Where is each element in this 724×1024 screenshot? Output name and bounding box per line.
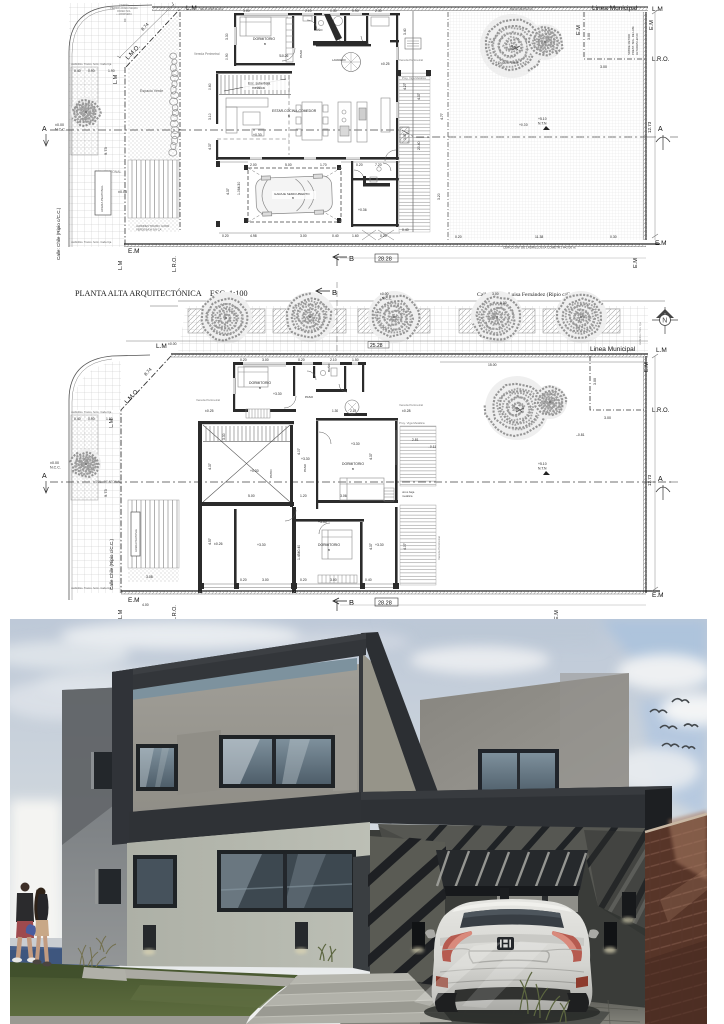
svg-text:Vereda Perimetral: Vereda Perimetral — [194, 52, 220, 56]
svg-text:3.00: 3.00 — [492, 292, 499, 296]
svg-text:3.40: 3.40 — [403, 28, 407, 35]
svg-text:9.73: 9.73 — [103, 146, 108, 155]
svg-text:+ JARDINERA: + JARDINERA — [116, 13, 132, 16]
svg-text:4.57: 4.57 — [208, 538, 212, 545]
svg-text:5.00: 5.00 — [285, 163, 292, 167]
svg-text:3.30: 3.30 — [225, 33, 229, 40]
svg-text:L.M: L.M — [113, 74, 119, 84]
svg-text:Jardinillos. Transv. horm. Cad: Jardinillos. Transv. horm. Cada Cja. — [71, 410, 112, 414]
svg-text:Vereda Perimetral: Vereda Perimetral — [399, 58, 423, 62]
svg-text:E.M: E.M — [644, 362, 650, 372]
svg-text:4.37: 4.37 — [226, 188, 230, 195]
svg-text:L.M: L.M — [186, 5, 197, 12]
svg-text:+3.30: +3.30 — [375, 543, 384, 547]
svg-text:20.40: 20.40 — [417, 141, 421, 150]
svg-text:PASO: PASO — [299, 49, 303, 58]
svg-text:0.20: 0.20 — [300, 578, 307, 582]
svg-text:+3.30: +3.30 — [273, 392, 282, 396]
svg-text:B: B — [259, 386, 261, 390]
svg-text:3.08: 3.08 — [146, 575, 153, 579]
svg-text:2.30: 2.30 — [375, 9, 382, 13]
svg-text:2.10: 2.10 — [305, 9, 312, 13]
svg-text:E.M: E.M — [576, 25, 582, 35]
svg-text:1.50: 1.50 — [352, 358, 359, 362]
svg-text:E.M: E.M — [128, 248, 140, 255]
svg-text:8.74: 8.74 — [143, 367, 153, 377]
svg-text:+0.36: +0.36 — [358, 208, 367, 212]
svg-text:1.30: 1.30 — [332, 409, 338, 413]
svg-text:0.90: 0.90 — [352, 9, 359, 13]
svg-text:N.T.N: N.T.N — [538, 122, 547, 126]
svg-text:Linea Municipal: Linea Municipal — [592, 5, 638, 12]
svg-text:0.90: 0.90 — [88, 417, 95, 421]
svg-text:4.77: 4.77 — [440, 113, 444, 120]
svg-text:DORMITORIO: DORMITORIO — [253, 37, 275, 41]
svg-text:DORMITORIO: DORMITORIO — [249, 381, 271, 385]
svg-text:Proy. Viga Metálica: Proy. Viga Metálica — [399, 421, 425, 425]
svg-text:3.00: 3.00 — [600, 65, 607, 69]
svg-text:PATIO: PATIO — [269, 469, 273, 478]
svg-text:L.M.O.: L.M.O. — [124, 388, 141, 406]
svg-text:L.M: L.M — [656, 347, 667, 354]
svg-text:3.20: 3.20 — [437, 193, 441, 200]
svg-text:⇅0.26: ⇅0.26 — [279, 54, 289, 58]
svg-text:Proy. Viga Metálica: Proy. Viga Metálica — [402, 76, 426, 80]
svg-text:28.28: 28.28 — [378, 257, 392, 263]
svg-text:4.07: 4.07 — [297, 448, 301, 455]
svg-text:3.00: 3.00 — [587, 33, 591, 40]
svg-text:B: B — [349, 598, 354, 607]
svg-text:Espacio Verde: Espacio Verde — [140, 89, 163, 93]
svg-text:0.20: 0.20 — [240, 578, 247, 582]
svg-text:+5.10: +5.10 — [538, 462, 547, 466]
svg-text:4.37: 4.37 — [208, 463, 212, 470]
svg-text:3.47: 3.47 — [403, 133, 407, 140]
svg-text:2.10: 2.10 — [330, 358, 337, 362]
svg-text:LAVADERO: LAVADERO — [332, 58, 346, 62]
svg-text:15.00: 15.00 — [488, 363, 497, 367]
svg-text:+0.30: +0.30 — [253, 133, 262, 137]
svg-text:4.98: 4.98 — [250, 234, 257, 238]
svg-text:1.60: 1.60 — [352, 234, 359, 238]
svg-text:L.R.O.: L.R.O. — [172, 256, 178, 272]
svg-text:1.20: 1.20 — [300, 494, 307, 498]
svg-text:BAÑO: BAÑO — [314, 27, 323, 32]
svg-text:N.C.C.: N.C.C. — [50, 466, 61, 470]
svg-text:±0.08: ±0.08 — [118, 190, 127, 194]
svg-text:Jardinillos. Transv. horm. Cad: Jardinillos. Transv. horm. Cada Cja. — [71, 62, 112, 66]
svg-text:0.40: 0.40 — [74, 69, 81, 73]
svg-text:0.20: 0.20 — [240, 358, 247, 362]
svg-text:3.00: 3.00 — [262, 358, 269, 362]
svg-text:5.00: 5.00 — [248, 494, 255, 498]
svg-text:B: B — [349, 254, 354, 263]
svg-text:Jardinillos. Transv. horm. Cad: Jardinillos. Transv. horm. Cada Cja. — [71, 586, 112, 590]
svg-text:+3.30: +3.30 — [318, 520, 327, 524]
svg-text:DORMITORIO: DORMITORIO — [318, 543, 340, 547]
svg-text:A: A — [658, 476, 663, 483]
svg-text:3.00: 3.00 — [262, 578, 269, 582]
svg-text:L.R.O.: L.R.O. — [652, 57, 670, 63]
svg-text:–0.81: –0.81 — [576, 433, 585, 437]
svg-text:E.M: E.M — [128, 597, 140, 604]
svg-text:11.38: 11.38 — [535, 235, 543, 239]
svg-text:1.30: 1.30 — [330, 9, 337, 13]
svg-text:L.M: L.M — [118, 609, 124, 619]
svg-text:Esc. sube/baja: Esc. sube/baja — [248, 82, 270, 86]
svg-text:2.00: 2.00 — [250, 163, 257, 167]
svg-text:3.06: 3.06 — [340, 494, 347, 498]
svg-text:1.00: 1.00 — [500, 301, 507, 305]
svg-text:3.00: 3.00 — [604, 416, 611, 420]
svg-text:L.M: L.M — [156, 343, 167, 350]
svg-text:4.07: 4.07 — [403, 543, 407, 550]
svg-text:DORMITORIO: DORMITORIO — [342, 462, 364, 466]
svg-text:±0.00: ±0.00 — [168, 342, 177, 346]
svg-text:Jardinillos Tran. Cja: Jardinillos Tran. Cja — [638, 322, 642, 345]
svg-text:L.R.O.: L.R.O. — [652, 408, 670, 414]
svg-text:±0.25: ±0.25 — [205, 409, 214, 413]
svg-text:JARDINES TRANSV. HORM.: JARDINES TRANSV. HORM. — [136, 224, 170, 228]
svg-text:0.40: 0.40 — [365, 578, 372, 582]
svg-text:L.M: L.M — [118, 260, 124, 270]
svg-text:N: N — [662, 318, 667, 325]
svg-text:metálica: metálica — [402, 494, 413, 498]
svg-text:+0.30: +0.30 — [250, 469, 259, 473]
svg-text:+5.10: +5.10 — [538, 117, 547, 121]
svg-text:Calle: Chile (Ripio c/C.C.): Calle: Chile (Ripio c/C.C.) — [56, 207, 61, 260]
svg-text:Vereda Perimetral: Vereda Perimetral — [437, 536, 441, 560]
svg-text:7.20: 7.20 — [375, 163, 382, 167]
svg-text:4.37: 4.37 — [369, 543, 373, 550]
svg-text:0.20: 0.20 — [222, 234, 229, 238]
svg-text:±0.00: ±0.00 — [50, 461, 59, 465]
svg-text:+3.30: +3.30 — [257, 543, 266, 547]
svg-text:PASO: PASO — [305, 395, 314, 399]
svg-text:2.10: 2.10 — [350, 409, 356, 413]
svg-text:L.M: L.M — [652, 6, 663, 13]
svg-text:3.10: 3.10 — [208, 113, 212, 120]
svg-text:E.M: E.M — [652, 592, 664, 599]
svg-text:Espacio Verde: Espacio Verde — [498, 61, 519, 65]
svg-text:E.M: E.M — [554, 610, 560, 620]
svg-text:REJA METALICA: REJA METALICA — [200, 7, 223, 11]
svg-text:A: A — [42, 126, 47, 133]
svg-text:BAÑO: BAÑO — [326, 363, 331, 372]
svg-text:E.M: E.M — [633, 258, 639, 268]
svg-text:ACERA PEATONAL: ACERA PEATONAL — [100, 185, 104, 212]
svg-text:1.70: 1.70 — [320, 163, 327, 167]
svg-text:4.27: 4.27 — [403, 83, 407, 90]
svg-text:3.00: 3.00 — [593, 378, 597, 385]
svg-text:4.37: 4.37 — [417, 93, 421, 100]
svg-text:metálica: metálica — [252, 86, 265, 90]
svg-text:1.064.30: 1.064.30 — [237, 182, 241, 195]
svg-text:0.40: 0.40 — [402, 228, 409, 232]
svg-text:4.37: 4.37 — [208, 143, 212, 150]
svg-text:28.28: 28.28 — [378, 601, 392, 607]
svg-text:N.C.C.: N.C.C. — [382, 297, 392, 301]
svg-text:3.00: 3.00 — [243, 9, 250, 13]
svg-text:±0.25: ±0.25 — [381, 62, 390, 66]
svg-text:9.73: 9.73 — [103, 488, 108, 497]
svg-text:±0.00: ±0.00 — [380, 292, 389, 296]
svg-text:B: B — [352, 467, 354, 471]
svg-text:1.4540.40: 1.4540.40 — [297, 545, 301, 560]
svg-text:0.60: 0.60 — [208, 83, 212, 90]
svg-text:ACERA PEATONAL: ACERA PEATONAL — [134, 528, 138, 552]
svg-text:Linea Municipal: Linea Municipal — [590, 346, 636, 353]
svg-text:3.00: 3.00 — [330, 578, 337, 582]
svg-text:4.37: 4.37 — [369, 453, 373, 460]
svg-text:N.T.N: N.T.N — [538, 467, 547, 471]
svg-text:±0.28: ±0.28 — [402, 409, 411, 413]
svg-text:0.20: 0.20 — [380, 234, 387, 238]
svg-text:Vereda Perimetral: Vereda Perimetral — [196, 398, 220, 402]
svg-text:B: B — [292, 196, 294, 200]
svg-text:VERDE BAJA S/N CA: VERDE BAJA S/N CA — [136, 228, 162, 232]
svg-text:ALTURAS H/2.00: ALTURAS H/2.00 — [635, 33, 639, 55]
svg-text:0.20: 0.20 — [356, 163, 363, 167]
svg-text:B: B — [264, 42, 266, 46]
svg-text:0.20: 0.20 — [298, 358, 305, 362]
svg-text:Vereda Perimetral: Vereda Perimetral — [399, 403, 423, 407]
svg-text:12.73: 12.73 — [647, 121, 652, 133]
svg-text:0.20: 0.20 — [455, 235, 462, 239]
svg-text:REJA METALICA: REJA METALICA — [510, 7, 533, 11]
svg-text:4.00: 4.00 — [142, 603, 149, 607]
svg-text:ESTAR-COCINA-COMEDOR: ESTAR-COCINA-COMEDOR — [272, 109, 317, 113]
svg-text:+3.30: +3.30 — [351, 442, 360, 446]
svg-text:0.90: 0.90 — [225, 53, 229, 60]
svg-text:0.40: 0.40 — [74, 417, 81, 421]
svg-text:+3.30: +3.30 — [301, 457, 310, 461]
svg-text:±0.00: ±0.00 — [55, 123, 64, 127]
svg-text:CERCO DIV. DE LADRILLOS (A COM: CERCO DIV. DE LADRILLOS (A COMETR.) h=2.… — [503, 246, 576, 250]
svg-text:L.R.O.: L.R.O. — [172, 605, 178, 621]
svg-text:0.30: 0.30 — [610, 235, 617, 239]
svg-text:0.40: 0.40 — [332, 234, 339, 238]
svg-text:B: B — [328, 548, 330, 552]
svg-text:1.90: 1.90 — [106, 417, 113, 421]
svg-text:E.M: E.M — [649, 20, 655, 30]
svg-text:A: A — [658, 126, 663, 133]
svg-text:Jardinillos. Transv. horm. Cad: Jardinillos. Transv. horm. Cada Cja. — [71, 240, 112, 244]
svg-text:12.73: 12.73 — [647, 474, 652, 486]
svg-text:1.90: 1.90 — [108, 69, 115, 73]
svg-text:N.C.C.: N.C.C. — [55, 128, 66, 132]
svg-text:3.30: 3.30 — [222, 433, 226, 440]
svg-text:0.90: 0.90 — [88, 69, 95, 73]
svg-text:±0.26: ±0.26 — [214, 542, 223, 546]
svg-text:A: A — [42, 473, 47, 480]
svg-text:B: B — [332, 288, 337, 297]
svg-text:Calle Chile (Ripio c/C.C.): Calle Chile (Ripio c/C.C.) — [109, 538, 114, 590]
svg-text:3.00: 3.00 — [300, 234, 307, 238]
svg-text:PASO: PASO — [303, 463, 307, 472]
svg-text:E.M: E.M — [655, 240, 667, 247]
